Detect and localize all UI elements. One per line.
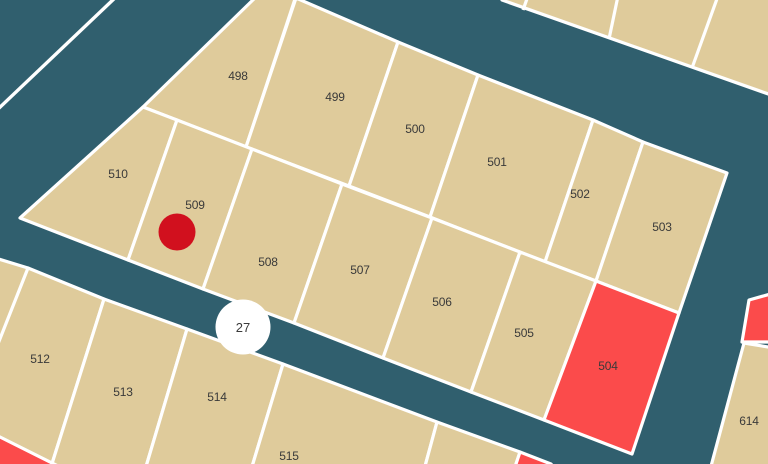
parcel-label-504: 504 <box>598 359 618 373</box>
parcel-label-514: 514 <box>207 390 227 404</box>
parcel-label-506: 506 <box>432 295 452 309</box>
map-viewport[interactable]: 498 499 500 501 502 503 510 509 508 507 … <box>0 0 768 464</box>
parcel-label-499: 499 <box>325 90 345 104</box>
red-dot-marker <box>159 214 196 251</box>
parcel-label-513: 513 <box>113 385 133 399</box>
parcel-label-515: 515 <box>279 449 299 463</box>
parcel-label-508: 508 <box>258 255 278 269</box>
parcel-label-503: 503 <box>652 220 672 234</box>
parcel-label-509: 509 <box>185 198 205 212</box>
road-width-badge: 27 <box>216 300 271 355</box>
parcel-label-502: 502 <box>570 187 590 201</box>
parcel-label-500: 500 <box>405 122 425 136</box>
parcel-label-505: 505 <box>514 326 534 340</box>
road-badge-label: 27 <box>236 320 250 335</box>
parcel-label-501: 501 <box>487 155 507 169</box>
parcel-label-512: 512 <box>30 352 50 366</box>
parcel-label-510: 510 <box>108 167 128 181</box>
parcel-label-614: 614 <box>739 414 759 428</box>
parcel-map: 498 499 500 501 502 503 510 509 508 507 … <box>0 0 768 464</box>
parcel-label-507: 507 <box>350 263 370 277</box>
parcel-label-498: 498 <box>228 69 248 83</box>
